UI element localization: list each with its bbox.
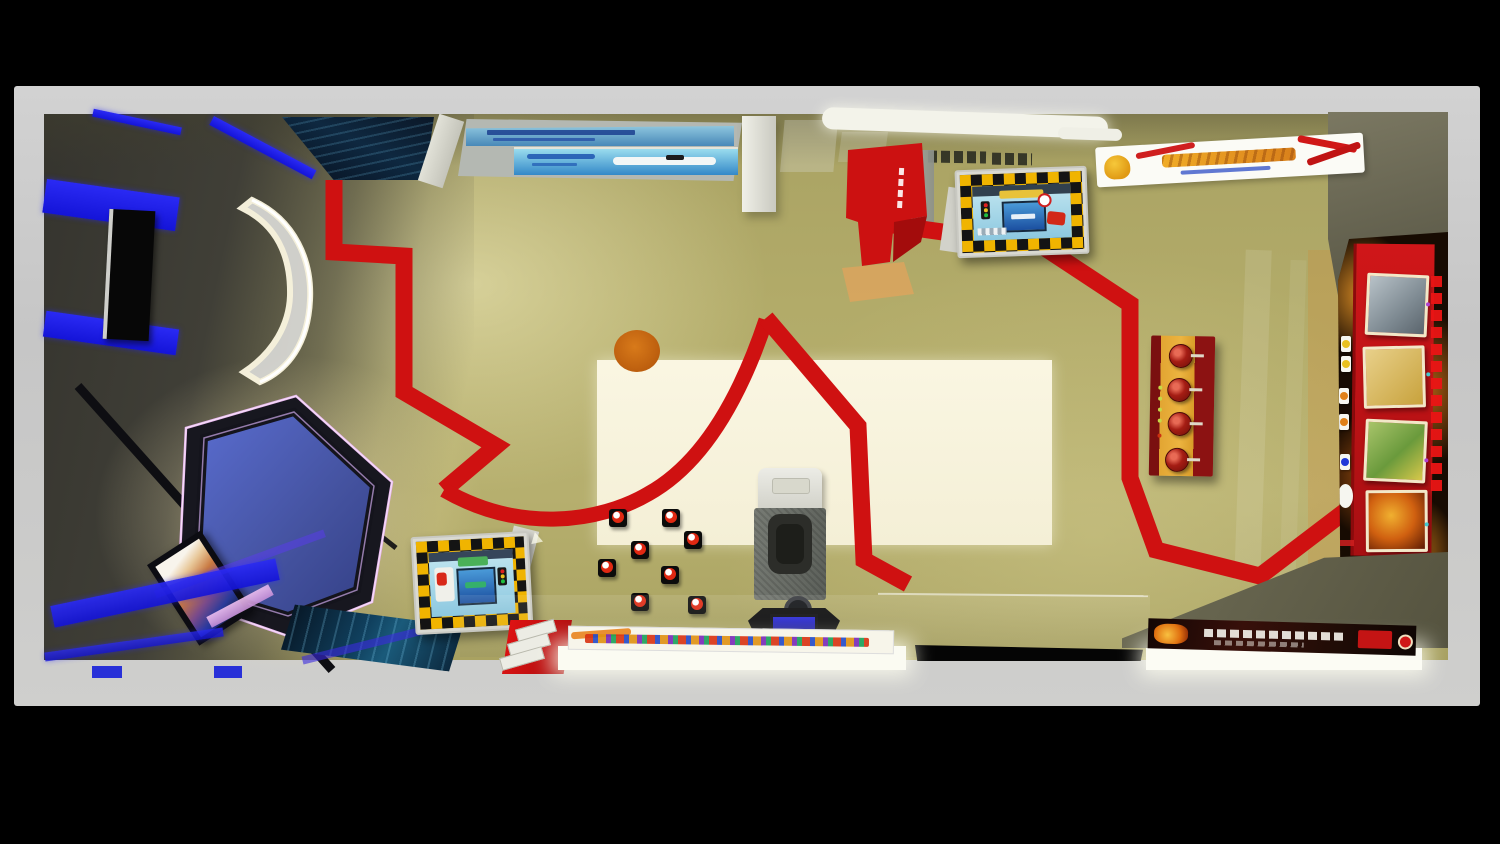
banner-subtitle	[1181, 166, 1271, 175]
slogan-banner-west	[568, 626, 894, 655]
extinguisher-console	[1149, 335, 1215, 476]
banner-seal	[1398, 634, 1413, 649]
photo-card	[1362, 345, 1425, 408]
wall-button	[1340, 454, 1350, 470]
road-sign	[1037, 193, 1051, 207]
stool	[661, 566, 679, 584]
orange-floor-marker	[614, 330, 660, 372]
banner-red-block	[1358, 630, 1392, 649]
cartoon-figure	[434, 567, 454, 601]
banner-white-text	[1204, 629, 1344, 641]
fire-extinguisher	[1167, 412, 1191, 436]
cartoon-red	[436, 572, 447, 585]
ceiling-light-band	[1058, 127, 1122, 141]
ship-image	[613, 157, 716, 165]
fire-image	[1154, 623, 1189, 644]
wall-lettering-dark	[928, 150, 986, 163]
screen-text-line	[487, 130, 634, 134]
info-screen-upper	[466, 126, 734, 146]
glass-panel	[838, 132, 888, 162]
wall-button	[1341, 336, 1351, 352]
frame-blue-tab	[92, 666, 122, 678]
speech-bubble	[1338, 484, 1353, 508]
ship-island	[666, 155, 684, 161]
red-car	[1047, 211, 1066, 226]
stool	[598, 559, 616, 577]
fire-red-panel	[1350, 244, 1434, 557]
fire-extinguisher	[1165, 448, 1189, 472]
gray-pillar	[904, 150, 934, 222]
platform-slot	[772, 478, 810, 494]
game-board	[972, 183, 1072, 240]
wall-button	[1339, 388, 1349, 404]
wall-lettering-dark	[992, 153, 1032, 166]
board-title-pill	[1000, 190, 1043, 199]
fire-extinguisher	[1167, 378, 1191, 402]
render-canvas	[0, 0, 1500, 844]
board-title-pill	[457, 557, 488, 567]
screen-text	[465, 582, 486, 589]
screen-text-line	[532, 163, 577, 167]
screen-text-line	[493, 138, 595, 142]
traffic-light	[980, 201, 990, 219]
fire-exhibition-wall	[1338, 232, 1448, 580]
vertical-red-title	[1431, 276, 1442, 496]
traffic-light	[497, 567, 507, 585]
small-red-label	[1338, 540, 1354, 546]
frame-blue-tab	[214, 666, 242, 678]
info-screen-lower	[514, 147, 738, 175]
photo-card	[1366, 490, 1428, 552]
screen-text-pill	[527, 154, 594, 160]
wall-button	[1339, 414, 1349, 430]
photo-card	[1365, 273, 1430, 338]
white-column	[742, 116, 776, 212]
traffic-game-table-north	[955, 166, 1090, 259]
seat-cushion	[776, 524, 804, 564]
mascot	[1104, 155, 1131, 180]
zebra-crossing	[977, 228, 1007, 235]
photo-card	[1363, 419, 1428, 484]
screen-text	[1012, 214, 1036, 220]
stool	[684, 531, 702, 549]
black-table-panel	[103, 209, 156, 341]
wall-button	[1341, 356, 1351, 372]
colorful-slogan-text	[585, 634, 869, 647]
stool	[631, 541, 649, 559]
stool	[662, 509, 680, 527]
fire-extinguisher	[1169, 344, 1193, 368]
banner-white-text	[1214, 640, 1304, 648]
stool	[609, 509, 627, 527]
